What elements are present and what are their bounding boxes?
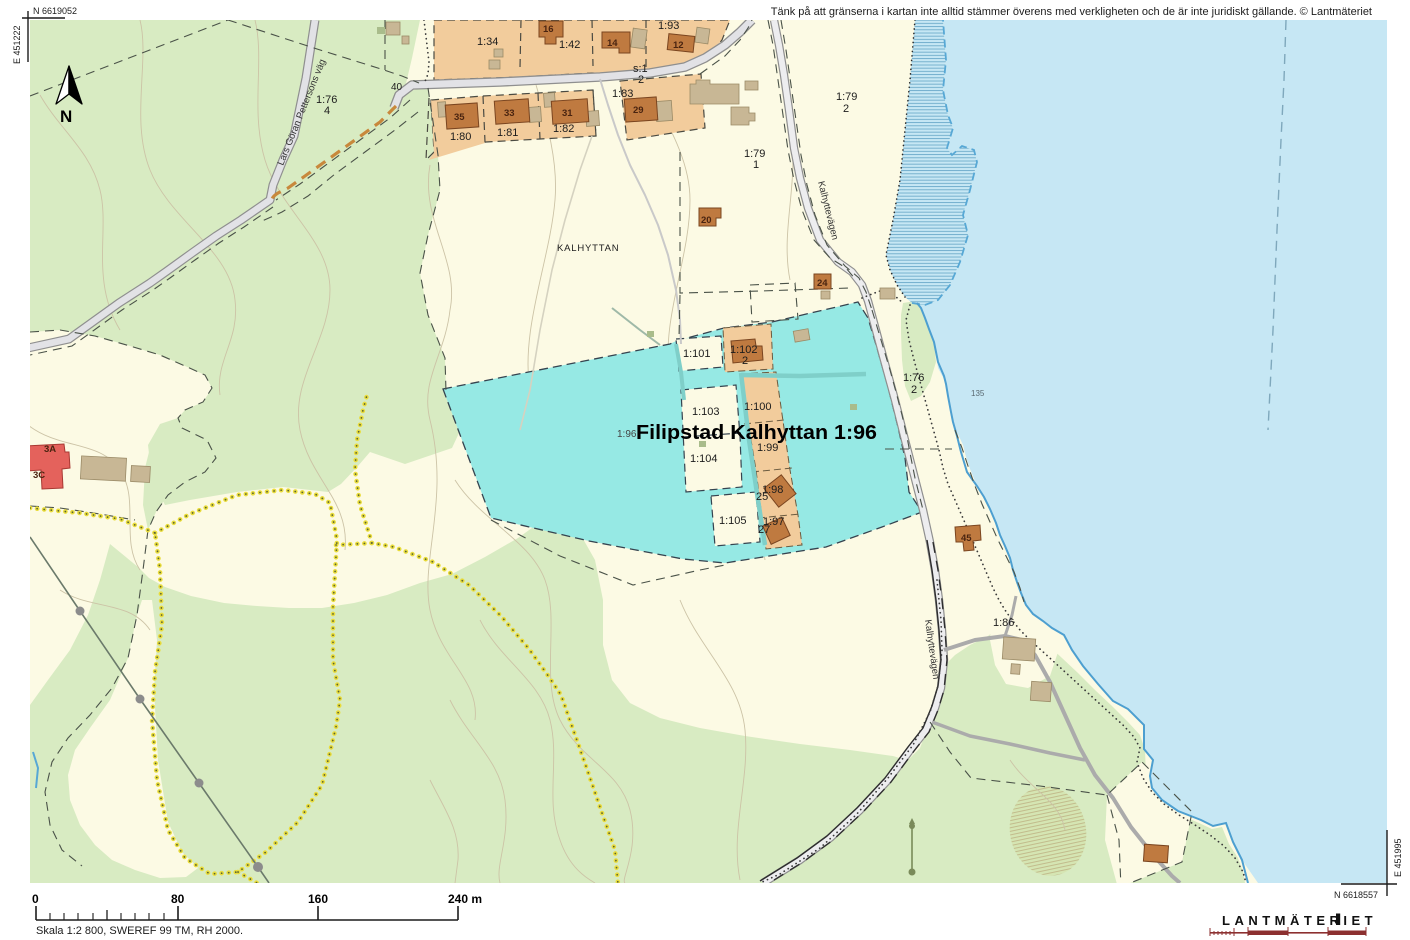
svg-text:1:86: 1:86 [993, 617, 1014, 629]
svg-text:1:93: 1:93 [658, 20, 679, 32]
svg-text:240 m: 240 m [448, 892, 482, 906]
svg-text:1:105: 1:105 [719, 515, 747, 527]
svg-text:E 451222: E 451222 [12, 25, 22, 64]
svg-text:27: 27 [758, 524, 770, 536]
svg-text:1:103: 1:103 [692, 406, 720, 418]
svg-text:29: 29 [633, 105, 644, 116]
svg-text:4: 4 [324, 105, 330, 117]
svg-text:3A: 3A [44, 444, 56, 455]
svg-text:1:79: 1:79 [836, 91, 857, 103]
svg-text:1:101: 1:101 [683, 348, 711, 360]
svg-text:160: 160 [308, 892, 328, 906]
svg-text:LANTMÄTERIET: LANTMÄTERIET [1222, 913, 1377, 928]
svg-text:E 451995: E 451995 [1393, 838, 1403, 877]
svg-text:35: 35 [454, 112, 465, 123]
svg-text:1:34: 1:34 [477, 36, 498, 48]
svg-text:1:96: 1:96 [617, 429, 637, 440]
svg-text:16: 16 [543, 24, 554, 35]
svg-text:N: N [60, 107, 72, 126]
svg-text:14: 14 [607, 38, 618, 49]
svg-text:1:104: 1:104 [690, 453, 718, 465]
svg-text:2: 2 [911, 384, 917, 396]
svg-text:2: 2 [742, 355, 748, 367]
svg-text:1:81: 1:81 [497, 127, 518, 139]
svg-text:1:80: 1:80 [450, 131, 471, 143]
svg-text:3C: 3C [33, 470, 45, 481]
svg-text:1:100: 1:100 [744, 401, 772, 413]
svg-text:Skala 1:2 800, SWEREF 99 TM, R: Skala 1:2 800, SWEREF 99 TM, RH 2000. [36, 925, 243, 937]
svg-text:1:82: 1:82 [553, 123, 574, 135]
svg-text:Filipstad Kalhyttan 1:96: Filipstad Kalhyttan 1:96 [636, 421, 877, 444]
svg-text:31: 31 [562, 108, 573, 119]
svg-text:1: 1 [753, 159, 759, 171]
svg-text:1:42: 1:42 [559, 39, 580, 51]
svg-text:N 6619052: N 6619052 [33, 6, 77, 16]
svg-text:40: 40 [391, 82, 403, 93]
svg-text:KALHYTTAN: KALHYTTAN [557, 243, 619, 254]
svg-text:20: 20 [701, 215, 712, 226]
svg-text:25: 25 [756, 491, 768, 503]
svg-text:33: 33 [504, 108, 515, 119]
svg-text:80: 80 [171, 892, 185, 906]
svg-text:1:83: 1:83 [612, 88, 633, 100]
svg-text:2: 2 [843, 103, 849, 115]
svg-text:N 6618557: N 6618557 [1334, 890, 1378, 900]
svg-text:24: 24 [817, 278, 828, 289]
svg-text:12: 12 [673, 40, 684, 51]
svg-text:0: 0 [32, 892, 39, 906]
svg-text:2: 2 [638, 74, 644, 86]
svg-text:Tänk på att gränserna i kartan: Tänk på att gränserna i kartan inte allt… [771, 6, 1372, 18]
svg-text:135: 135 [971, 389, 985, 398]
svg-text:1:76: 1:76 [903, 372, 924, 384]
svg-text:45: 45 [961, 533, 972, 544]
